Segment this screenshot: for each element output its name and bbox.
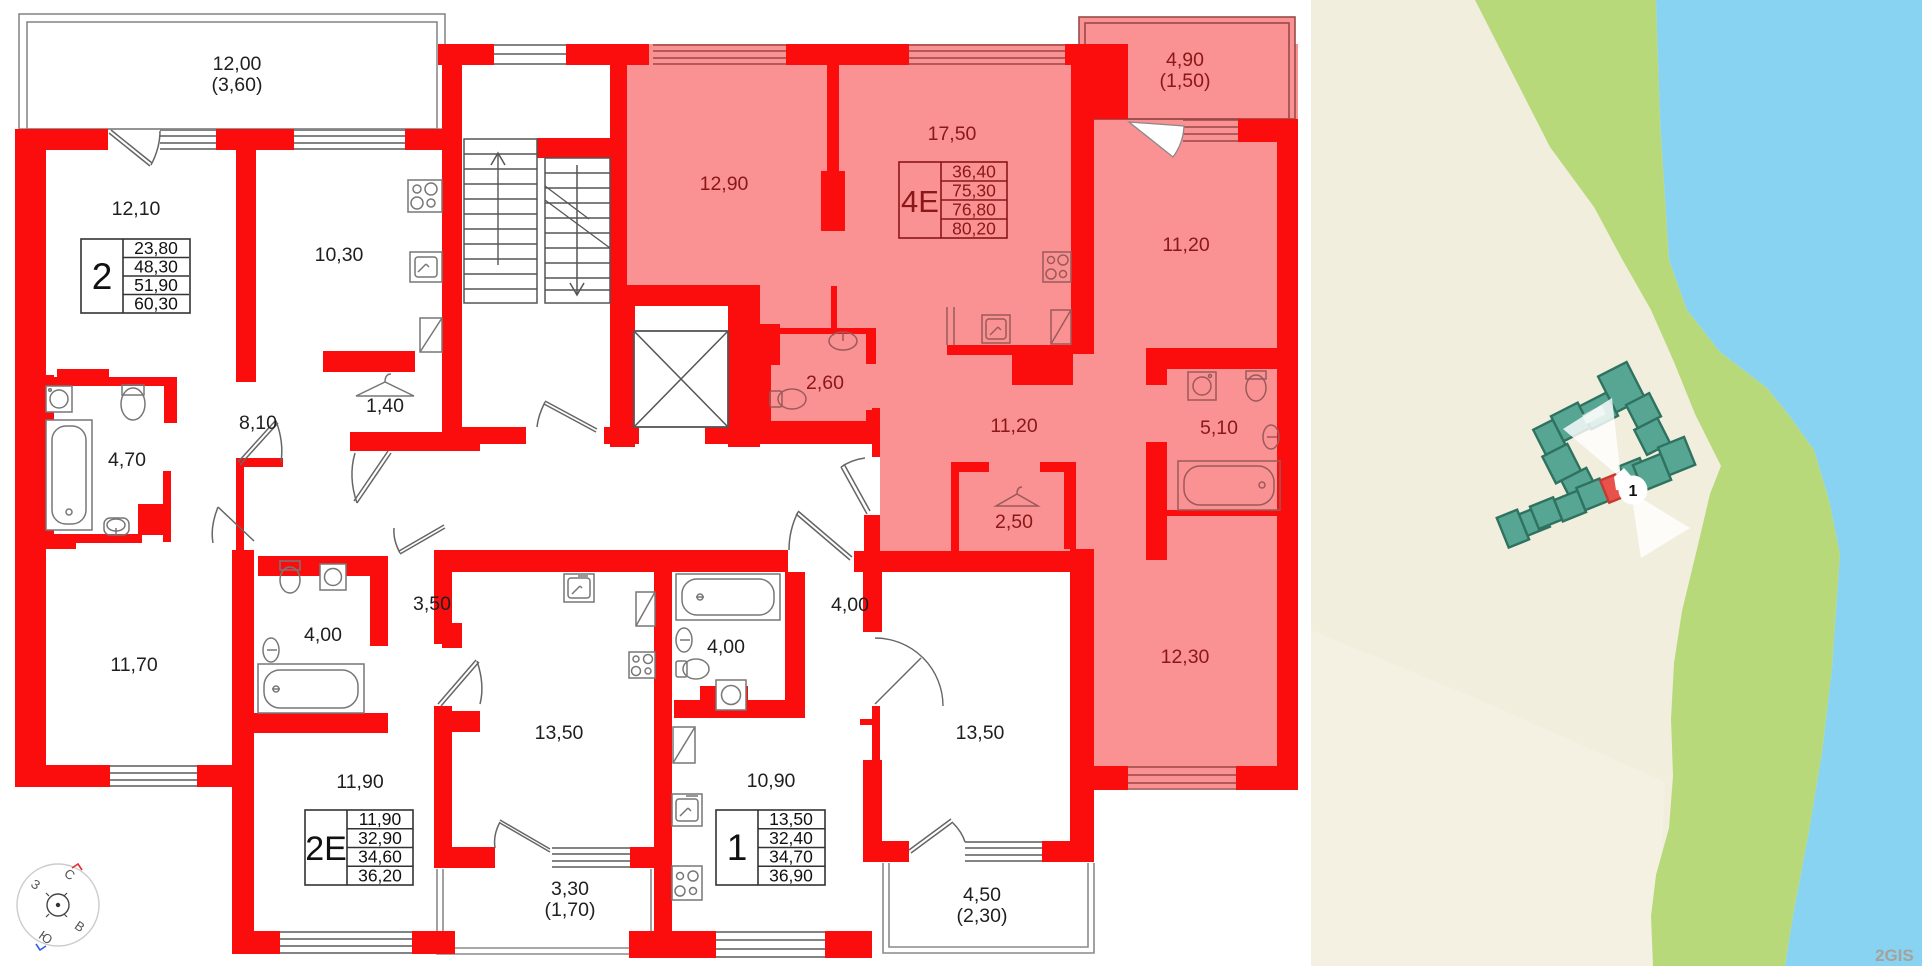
svg-text:1,40: 1,40 <box>366 395 404 417</box>
svg-text:1: 1 <box>727 827 748 868</box>
svg-text:3,50: 3,50 <box>413 593 451 615</box>
svg-text:32,40: 32,40 <box>769 828 813 848</box>
svg-text:(2,30): (2,30) <box>957 905 1008 927</box>
svg-text:12,00: 12,00 <box>213 53 262 75</box>
svg-text:10,30: 10,30 <box>315 244 364 266</box>
svg-text:10,90: 10,90 <box>747 770 796 792</box>
svg-text:12,30: 12,30 <box>1161 646 1210 668</box>
svg-text:13,50: 13,50 <box>769 809 813 829</box>
svg-text:36,20: 36,20 <box>358 865 402 885</box>
svg-text:11,20: 11,20 <box>1162 234 1210 256</box>
svg-text:5,10: 5,10 <box>1200 417 1238 439</box>
svg-text:4,50: 4,50 <box>963 884 1001 906</box>
svg-text:17,50: 17,50 <box>928 123 977 145</box>
svg-text:4,00: 4,00 <box>831 594 869 616</box>
svg-text:11,70: 11,70 <box>110 654 158 676</box>
svg-text:51,90: 51,90 <box>134 275 178 295</box>
svg-text:2,60: 2,60 <box>806 372 844 394</box>
svg-text:80,20: 80,20 <box>952 219 996 239</box>
svg-text:2GIS: 2GIS <box>1875 946 1914 965</box>
svg-text:2,50: 2,50 <box>995 511 1033 533</box>
svg-text:32,90: 32,90 <box>358 828 402 848</box>
svg-text:4,00: 4,00 <box>304 624 342 646</box>
svg-text:34,70: 34,70 <box>769 847 813 867</box>
svg-text:4,70: 4,70 <box>108 449 146 471</box>
svg-text:13,50: 13,50 <box>535 722 584 744</box>
svg-text:(1,50): (1,50) <box>1160 70 1211 92</box>
svg-text:34,60: 34,60 <box>358 847 402 867</box>
svg-text:3,30: 3,30 <box>551 878 589 900</box>
svg-text:2E: 2E <box>305 830 347 868</box>
svg-text:1: 1 <box>1629 483 1638 500</box>
svg-text:8,10: 8,10 <box>239 412 277 434</box>
svg-text:12,10: 12,10 <box>112 198 161 220</box>
svg-text:4E: 4E <box>901 184 939 219</box>
svg-text:11,20: 11,20 <box>990 415 1038 437</box>
svg-text:11,90: 11,90 <box>359 809 402 829</box>
svg-text:(1,70): (1,70) <box>545 899 596 921</box>
svg-text:(3,60): (3,60) <box>212 74 263 96</box>
svg-text:60,30: 60,30 <box>134 294 178 314</box>
svg-text:12,90: 12,90 <box>700 173 749 195</box>
svg-text:75,30: 75,30 <box>952 181 996 201</box>
svg-text:4,90: 4,90 <box>1166 49 1204 71</box>
svg-text:48,30: 48,30 <box>134 257 178 277</box>
svg-text:36,90: 36,90 <box>769 865 813 885</box>
svg-text:11,90: 11,90 <box>336 771 384 793</box>
svg-text:13,50: 13,50 <box>956 722 1005 744</box>
svg-text:2: 2 <box>92 256 113 297</box>
svg-text:36,40: 36,40 <box>952 162 996 182</box>
svg-text:23,80: 23,80 <box>134 238 178 258</box>
svg-text:4,00: 4,00 <box>707 636 745 658</box>
svg-text:76,80: 76,80 <box>952 200 996 220</box>
